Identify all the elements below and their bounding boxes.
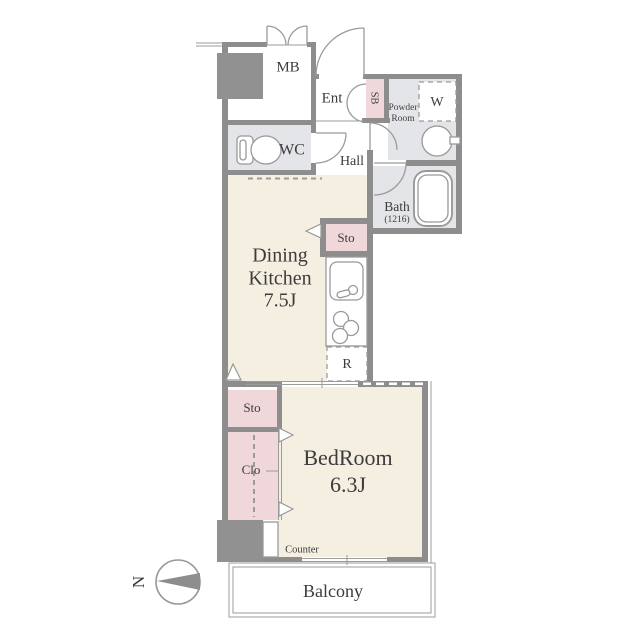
floor-plan-page: N MB Ent SB Powder Room W WC Hall Bath (…: [0, 0, 640, 640]
balcony-label: Balcony: [303, 581, 363, 601]
wall-sb-bottom: [362, 118, 390, 123]
wall-bedroom-sto-right: [277, 387, 282, 432]
wall-entrance-stub: [311, 74, 319, 79]
wall-right-outer: [456, 74, 462, 234]
wc-label: WC: [279, 142, 305, 159]
bedroom-sto-label: Sto: [243, 400, 260, 415]
powder-room-label-line1: Powder: [388, 103, 418, 113]
wall-bedroom-right: [422, 381, 428, 562]
wall-powder-bath: [406, 160, 456, 166]
wall-sto-clo-divider: [222, 427, 282, 432]
kitchen-sink-icon: [330, 262, 363, 300]
wall-hall-powder-stub: [367, 118, 373, 123]
kitchen-sto-label: Sto: [337, 230, 354, 245]
bedroom-size-label: 6.3J: [330, 472, 367, 497]
compass-icon: N: [129, 560, 200, 604]
counter-unit: [263, 522, 278, 557]
wall-wc-top: [222, 120, 316, 125]
mb-double-doors: [267, 26, 307, 45]
wall-bedroom-bottom-left: [263, 557, 302, 562]
wall-kitchen-right: [367, 150, 373, 385]
wall-bath-bottom: [367, 228, 462, 234]
dining-kitchen-label-line1: Dining: [252, 245, 308, 267]
wall-wc-bottom: [222, 170, 316, 175]
wall-mb-ent-divider: [311, 42, 316, 133]
dining-kitchen-label-line2: Kitchen: [248, 268, 311, 290]
bathtub-icon: [414, 171, 452, 226]
sb-label: SB: [369, 92, 380, 105]
wall-entrance-top: [363, 74, 456, 79]
wall-kitchen-sto-top: [320, 218, 373, 224]
kitchen-unit: [326, 257, 367, 346]
dining-kitchen-size-label: 7.5J: [264, 290, 297, 312]
shoe-box-doors: [347, 84, 366, 122]
wall-mb-top-left: [222, 42, 267, 47]
mb-label: MB: [276, 59, 299, 75]
ent-label: Ent: [322, 90, 344, 106]
bath-label: Bath: [384, 199, 410, 214]
wall-left-outer: [222, 42, 228, 522]
pillar-top: [217, 53, 263, 99]
wall-bedroom-bottom-right: [387, 557, 428, 562]
entrance-door: [316, 28, 364, 77]
bedroom-label: BedRoom: [303, 445, 392, 470]
toilet-icon: [237, 136, 281, 164]
closet-label: Clo: [242, 462, 261, 477]
bath-size-label: (1216): [384, 214, 409, 225]
wall-kitchen-sto-bottom: [320, 251, 373, 257]
refrigerator-label: R: [342, 357, 352, 372]
washer-label: W: [430, 95, 444, 110]
counter-label: Counter: [285, 544, 319, 555]
powder-room-label-line2: Room: [391, 114, 415, 124]
floor-plan-drawing: N MB Ent SB Powder Room W WC Hall Bath (…: [0, 0, 640, 640]
wall-sb-right: [384, 74, 389, 123]
hall-label: Hall: [340, 154, 364, 169]
compass-north-label: N: [129, 576, 148, 588]
pillar-bottom: [217, 520, 263, 562]
